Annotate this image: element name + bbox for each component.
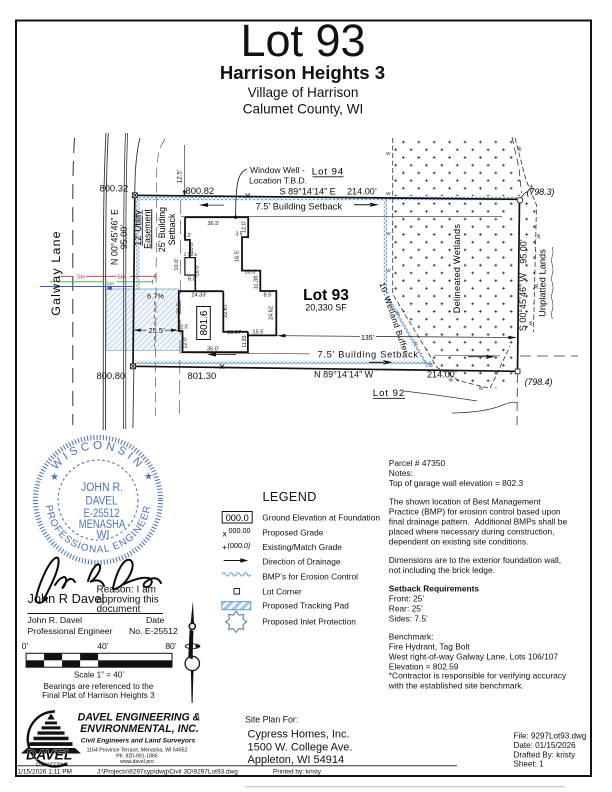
svg-text:Window Well -: Window Well - xyxy=(250,165,305,175)
svg-text:+: + xyxy=(222,542,227,552)
svg-text:95.00’: 95.00’ xyxy=(119,225,129,250)
svg-text:Lot 93: Lot 93 xyxy=(240,15,365,66)
svg-text:22.67: 22.67 xyxy=(223,304,229,318)
svg-text:placed where necessary during: placed where necessary during constructi… xyxy=(389,527,555,537)
svg-text:LEGEND: LEGEND xyxy=(263,490,317,504)
svg-text:24.33’: 24.33’ xyxy=(191,292,206,298)
svg-text:2.0’: 2.0’ xyxy=(180,325,188,331)
svg-text:18.0’: 18.0’ xyxy=(195,264,201,276)
svg-text:25’ Building: 25’ Building xyxy=(157,207,167,252)
svg-text:11.83: 11.83 xyxy=(242,335,248,347)
svg-text:Fire Hydrant, Tag Bolt: Fire Hydrant, Tag Bolt xyxy=(389,642,471,652)
svg-text:Ground Elevation at Foundation: Ground Elevation at Foundation xyxy=(262,513,380,523)
svg-text:www.davel.pro: www.davel.pro xyxy=(120,759,154,765)
svg-text:John R Davel: John R Davel xyxy=(28,591,105,606)
svg-text:13.67: 13.67 xyxy=(227,330,241,336)
svg-text:12.0’: 12.0’ xyxy=(242,221,248,233)
svg-text:Practice (BMP) for erosion con: Practice (BMP) for erosion control based… xyxy=(389,507,561,517)
svg-text:24.62: 24.62 xyxy=(268,306,274,320)
svg-text:J:\Projects\9297cyp\dwg\Civil: J:\Projects\9297cyp\dwg\Civil 3D\9297Lot… xyxy=(97,768,238,775)
svg-text:801.30: 801.30 xyxy=(188,370,217,381)
svg-text:*Contractor is responsible for: *Contractor is responsible for verifying… xyxy=(389,671,567,681)
svg-text:W: W xyxy=(478,385,484,392)
svg-text:Proposed Grade: Proposed Grade xyxy=(262,528,324,538)
svg-text:W: W xyxy=(515,146,522,153)
svg-text:DAVEL: DAVEL xyxy=(26,747,72,763)
svg-text:Dimensions are to the exterior: Dimensions are to the exterior foundatio… xyxy=(389,555,561,565)
svg-text:1164 Province Terrace, Menash: 1164 Province Terrace, Menasha, WI 54952 xyxy=(87,747,188,753)
svg-text:DAVEL: DAVEL xyxy=(86,496,119,508)
svg-text:Proposed Tracking Pad: Proposed Tracking Pad xyxy=(262,601,349,611)
svg-text:16.5’: 16.5’ xyxy=(235,250,241,262)
svg-text:Easement: Easement xyxy=(142,209,152,249)
svg-text:final drainage pattern. Addit: final drainage pattern. Additional BMPs … xyxy=(389,517,568,527)
svg-text:File: 9297Lot93.dwg: File: 9297Lot93.dwg xyxy=(514,732,587,741)
svg-text:800.32: 800.32 xyxy=(100,182,129,193)
svg-text:10.0’: 10.0’ xyxy=(244,270,256,276)
svg-text:12.5’: 12.5’ xyxy=(177,170,184,183)
svg-text:John R. Davel: John R. Davel xyxy=(28,615,83,625)
svg-text:W: W xyxy=(386,151,391,157)
svg-text:(000.0): (000.0) xyxy=(228,541,251,550)
svg-text:DAVEL ENGINEERING &: DAVEL ENGINEERING & xyxy=(78,712,201,724)
svg-text:Printed by: kristy: Printed by: kristy xyxy=(273,768,322,775)
svg-text:N 00°45’46” E: N 00°45’46” E xyxy=(110,209,120,265)
svg-text:Rear: 25’: Rear: 25’ xyxy=(389,604,423,614)
svg-text:2.5: 2.5 xyxy=(184,252,191,257)
svg-text:Date: 01/15/2026: Date: 01/15/2026 xyxy=(514,741,577,750)
svg-text:(798.4): (798.4) xyxy=(525,377,553,387)
svg-text:Village of Harrison: Village of Harrison xyxy=(248,85,359,100)
svg-text:Site Plan For:: Site Plan For: xyxy=(245,715,298,725)
svg-text:25.5’: 25.5’ xyxy=(149,326,166,335)
svg-text:15.5’: 15.5’ xyxy=(252,330,264,336)
svg-text:Galway Lane: Galway Lane xyxy=(49,230,63,316)
svg-text:Sides: 7.5’: Sides: 7.5’ xyxy=(389,614,428,624)
svg-text:80’: 80’ xyxy=(165,641,176,651)
svg-text:95.00’: 95.00’ xyxy=(518,239,528,264)
svg-text:dependent on existing site con: dependent on existing site conditions. xyxy=(389,537,529,547)
svg-text:The shown location of Best Man: The shown location of Best Management xyxy=(389,497,541,507)
svg-text:800.80: 800.80 xyxy=(97,370,126,381)
svg-text:214.00’: 214.00’ xyxy=(347,186,377,196)
svg-text:8.5’: 8.5’ xyxy=(263,293,272,299)
svg-text:Top of garage wall elevation =: Top of garage wall elevation = 802.3 xyxy=(389,478,524,488)
svg-text:2.5: 2.5 xyxy=(191,252,198,257)
svg-text:22.5’: 22.5’ xyxy=(177,302,183,314)
svg-text:Lot Corner: Lot Corner xyxy=(262,586,302,596)
svg-text:Professional Engineer: Professional Engineer xyxy=(28,626,113,636)
svg-text:000.0: 000.0 xyxy=(226,513,249,523)
svg-text:Existing/Match Grade: Existing/Match Grade xyxy=(262,542,342,552)
svg-text:W: W xyxy=(535,234,541,240)
svg-text:20,330 SF: 20,330 SF xyxy=(305,303,347,313)
svg-text:Unplatted Lands: Unplatted Lands xyxy=(538,249,548,317)
svg-text:Lot 94: Lot 94 xyxy=(312,167,344,178)
svg-text:10.0’: 10.0’ xyxy=(174,258,180,270)
svg-text:Sheet: 1: Sheet: 1 xyxy=(514,760,545,769)
svg-text:Benchmark:: Benchmark: xyxy=(389,632,434,642)
svg-text:Location T.B.D.: Location T.B.D. xyxy=(249,176,307,186)
svg-text:S 00°45’46” W: S 00°45’46” W xyxy=(518,272,528,331)
svg-text:Final Plat of Harrison Heights: Final Plat of Harrison Heights 3 xyxy=(42,691,155,700)
svg-text:S 89°14’14” E: S 89°14’14” E xyxy=(280,186,336,196)
svg-text:Cypress Homes, Inc.: Cypress Homes, Inc. xyxy=(248,729,350,741)
svg-text:JOHN R.: JOHN R. xyxy=(81,482,123,494)
svg-text:x: x xyxy=(223,529,228,539)
svg-text:Direction of Drainage: Direction of Drainage xyxy=(262,556,341,566)
svg-text:1500 W. College Ave.: 1500 W. College Ave. xyxy=(248,742,353,754)
svg-text:Front: 25’: Front: 25’ xyxy=(389,594,425,604)
svg-text:36.0’: 36.0’ xyxy=(207,347,219,353)
svg-text:★: ★ xyxy=(144,472,153,483)
svg-text:Date: Date xyxy=(146,615,165,625)
svg-text:Sto: Sto xyxy=(117,275,125,281)
svg-text:West right-of-way Galway Lane,: West right-of-way Galway Lane, Lots 106/… xyxy=(389,652,559,662)
svg-text:N 89°14’14” W: N 89°14’14” W xyxy=(314,370,374,380)
svg-text:0’: 0’ xyxy=(22,641,29,651)
svg-text:No. E-25512: No. E-25512 xyxy=(129,626,178,636)
svg-text:11.38: 11.38 xyxy=(253,276,259,290)
svg-text:Appleton, WI 54914: Appleton, WI 54914 xyxy=(248,754,345,766)
svg-text:36.5’: 36.5’ xyxy=(207,221,219,227)
svg-text:40’: 40’ xyxy=(97,641,108,651)
svg-text:12’ Utility: 12’ Utility xyxy=(133,210,143,246)
svg-text:Drafted By: kristy: Drafted By: kristy xyxy=(514,750,577,759)
svg-text:801.6: 801.6 xyxy=(199,310,210,335)
svg-text:7.5’ Building Setback: 7.5’ Building Setback xyxy=(318,349,419,359)
svg-text:Parcel # 47350: Parcel # 47350 xyxy=(389,458,446,468)
svg-text:1/15/2026 1:11 PM: 1/15/2026 1:11 PM xyxy=(18,768,72,775)
svg-text:Setback: Setback xyxy=(167,213,177,245)
svg-text:(798.3): (798.3) xyxy=(527,187,555,197)
svg-text:4.0’: 4.0’ xyxy=(183,233,191,239)
svg-text:12.0’: 12.0’ xyxy=(182,336,188,348)
svg-text:000.00: 000.00 xyxy=(229,526,251,535)
svg-text:800.82: 800.82 xyxy=(186,185,215,196)
svg-text:Lot 92: Lot 92 xyxy=(373,388,405,399)
svg-text:★: ★ xyxy=(50,472,59,483)
svg-text:Proposed Inlet Protection: Proposed Inlet Protection xyxy=(262,616,356,626)
svg-text:7.5’ Building Setback: 7.5’ Building Setback xyxy=(256,202,343,212)
svg-text:BMP’s for Erosion Control: BMP’s for Erosion Control xyxy=(262,572,358,582)
svg-text:Harrison Heights 3: Harrison Heights 3 xyxy=(220,62,385,83)
svg-text:135’: 135’ xyxy=(361,335,375,342)
svg-text:WI: WI xyxy=(97,530,110,542)
svg-text:Calumet County, WI: Calumet County, WI xyxy=(243,102,364,117)
svg-text:Delineated Wetlands: Delineated Wetlands xyxy=(452,224,462,314)
svg-text:San: San xyxy=(105,281,114,287)
svg-text:W: W xyxy=(386,191,391,197)
svg-text:Sto: Sto xyxy=(77,275,85,281)
svg-text:Notes:: Notes: xyxy=(389,468,413,478)
svg-text:214.00’: 214.00’ xyxy=(427,370,457,380)
svg-text:Setback Requirements: Setback Requirements xyxy=(389,584,480,594)
svg-text:Lot 93: Lot 93 xyxy=(303,287,349,304)
svg-text:Scale 1” = 40’: Scale 1” = 40’ xyxy=(74,670,124,679)
svg-text:with the established site benc: with the established site benchmark. xyxy=(388,681,524,691)
svg-text:Civil Engineers and Land Surve: Civil Engineers and Land Surveyors xyxy=(81,738,196,745)
svg-text:3.5: 3.5 xyxy=(236,232,243,238)
svg-text:ENVIRONMENTAL, INC.: ENVIRONMENTAL, INC. xyxy=(80,723,199,735)
svg-text:not including the brick ledge.: not including the brick ledge. xyxy=(389,565,495,575)
